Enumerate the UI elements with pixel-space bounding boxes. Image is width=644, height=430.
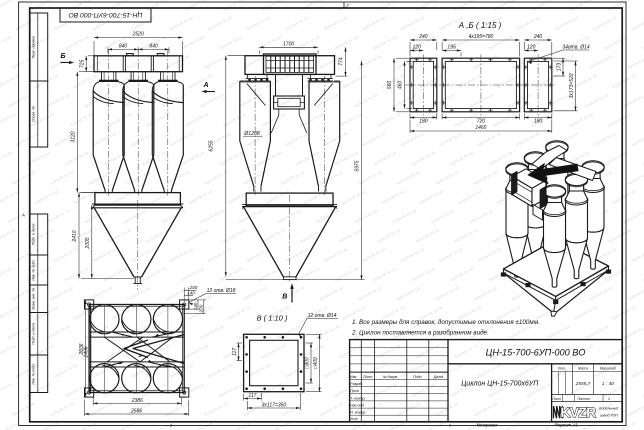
svg-text:Изм: Изм: [350, 375, 357, 379]
svg-text:5975: 5975: [354, 160, 360, 171]
svg-text:Лит.: Лит.: [557, 366, 566, 370]
svg-text:□400: □400: [313, 357, 319, 369]
svg-text:34отв. Ø14: 34отв. Ø14: [562, 45, 590, 51]
svg-text:180: 180: [419, 119, 428, 125]
svg-text:Подп. и дата: Подп. и дата: [32, 323, 36, 345]
svg-text:Масса: Масса: [578, 366, 588, 370]
svg-text:Масштаб: Масштаб: [600, 366, 616, 370]
svg-text:завод РЗП: завод РЗП: [599, 414, 618, 418]
svg-text:Копельный: Копельный: [599, 407, 618, 411]
svg-text:Взам. инв. №: Взам. инв. №: [32, 288, 36, 310]
svg-text:2. Циклон поставляется в разоб: 2. Циклон поставляется в разобранном вид…: [351, 328, 489, 336]
svg-text:120: 120: [413, 45, 422, 51]
svg-text:720: 720: [477, 119, 486, 125]
svg-text:Пров.: Пров.: [350, 389, 359, 393]
svg-text:2586: 2586: [130, 408, 142, 414]
svg-text:725: 725: [79, 59, 85, 68]
svg-text:Инв. № дубл.: Инв. № дубл.: [32, 259, 36, 281]
svg-text:Подп.: Подп.: [413, 375, 422, 379]
svg-text:6255: 6255: [209, 140, 215, 151]
svg-text:Лист: Лист: [362, 375, 372, 379]
svg-text:3x173=520: 3x173=520: [569, 73, 575, 98]
svg-text:774: 774: [339, 57, 345, 66]
svg-text:В: В: [282, 294, 287, 301]
svg-text:ЦН-15-700-6УП-000 ВО: ЦН-15-700-6УП-000 ВО: [486, 348, 586, 358]
svg-text:560: 560: [387, 81, 393, 90]
svg-text:2520: 2520: [132, 32, 144, 38]
svg-text:140: 140: [187, 290, 195, 295]
svg-text:200: 200: [199, 304, 204, 313]
svg-text:Справ. №: Справ. №: [32, 106, 36, 122]
svg-text:Лист: Лист: [551, 397, 561, 401]
svg-text:Нач.отд: Нач.отд: [350, 404, 364, 408]
svg-text:Перв. примен.: Перв. примен.: [32, 35, 36, 58]
svg-text:1700: 1700: [283, 41, 294, 47]
svg-text:Утв.: Утв.: [350, 417, 358, 421]
svg-text:2005: 2005: [85, 237, 91, 249]
svg-text:№ докум.: № докум.: [383, 375, 398, 379]
svg-text:А ,Б ( 1:15 ): А ,Б ( 1:15 ): [458, 21, 502, 30]
svg-text:840: 840: [119, 44, 128, 50]
svg-text:Формат А3: Формат А3: [555, 422, 579, 427]
svg-text:180: 180: [534, 119, 543, 125]
svg-text:2555,7: 2555,7: [575, 381, 591, 387]
svg-text:Инв. № подл.: Инв. № подл.: [32, 363, 36, 385]
svg-text:1460: 1460: [475, 125, 486, 131]
svg-text:Б: Б: [61, 53, 66, 60]
svg-text:2386: 2386: [131, 398, 143, 404]
svg-text:12 отв. Ø14: 12 отв. Ø14: [308, 313, 337, 319]
svg-text:173: 173: [556, 63, 562, 72]
svg-text:240: 240: [533, 34, 543, 40]
svg-text:1: 1: [449, 422, 451, 427]
svg-text:3x117=350: 3x117=350: [262, 403, 287, 409]
svg-text:□300: □300: [304, 357, 310, 369]
svg-text:Разраб.: Разраб.: [350, 382, 363, 386]
svg-text:3120: 3120: [70, 131, 76, 142]
svg-text:Н. контр.: Н. контр.: [350, 411, 366, 415]
svg-text:Копировал: Копировал: [477, 422, 498, 427]
svg-text:1: 1: [608, 397, 610, 401]
svg-text:1. Все размеры для справок, до: 1. Все размеры для справок, допустимые о…: [352, 318, 540, 326]
svg-text:2410: 2410: [72, 230, 78, 242]
svg-text:Т. контр.: Т. контр.: [350, 396, 365, 400]
svg-text:А: А: [202, 82, 208, 89]
svg-text:460: 460: [398, 81, 404, 90]
svg-text:840: 840: [149, 44, 158, 50]
svg-text:ЦН-15-700-6УП-000 ВО: ЦН-15-700-6УП-000 ВО: [68, 11, 142, 18]
svg-text:Листов: Листов: [576, 397, 590, 401]
svg-text:195: 195: [447, 45, 456, 51]
svg-text:А: А: [21, 213, 25, 218]
svg-text:2406: 2406: [84, 346, 90, 358]
svg-text:Циклон ЦН-15-700х6УП: Циклон ЦН-15-700х6УП: [461, 381, 539, 388]
svg-text:В ( 1:10 ): В ( 1:10 ): [257, 314, 288, 323]
svg-text:4x195=780: 4x195=780: [468, 34, 493, 40]
svg-text:KVZR: KVZR: [560, 405, 596, 420]
svg-text:12 отв. Ø18: 12 отв. Ø18: [207, 288, 236, 294]
svg-text:Подп. и дата: Подп. и дата: [32, 223, 36, 245]
svg-text:1 : 40: 1 : 40: [602, 381, 614, 387]
svg-text:117: 117: [232, 348, 238, 356]
svg-text:240: 240: [418, 34, 428, 40]
svg-text:117: 117: [248, 393, 256, 399]
svg-text:120: 120: [527, 45, 536, 51]
svg-text:Дата: Дата: [433, 375, 443, 379]
